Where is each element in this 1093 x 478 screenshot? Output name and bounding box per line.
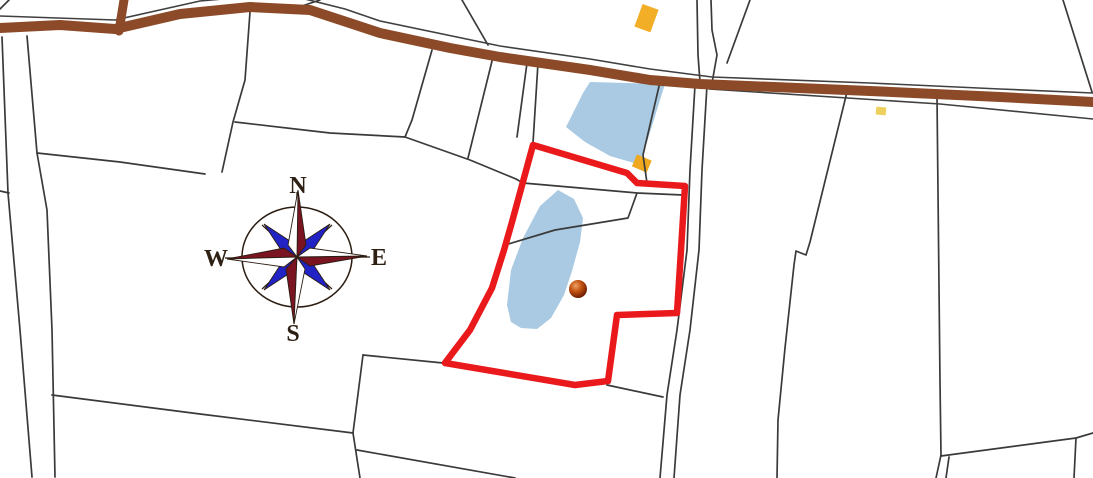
map-canvas: N S W E (0, 0, 1093, 478)
compass-label-west: W (204, 246, 228, 272)
compass-label-north: N (289, 173, 307, 199)
building-small-east (876, 107, 887, 116)
compass-label-south: S (286, 321, 299, 347)
compass-label-east: E (371, 245, 387, 271)
parcel-map-svg: N S W E (0, 0, 1093, 478)
location-marker (569, 280, 587, 298)
road-branch-north (119, 0, 124, 31)
